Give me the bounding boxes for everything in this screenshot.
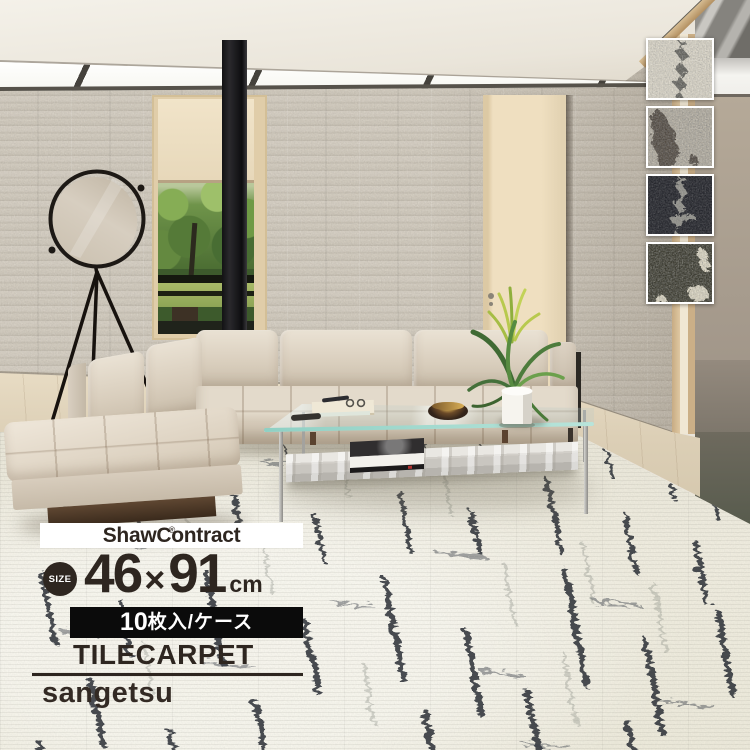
case-text: 枚入/ケース xyxy=(148,613,253,632)
plant-crown xyxy=(489,288,539,344)
size-unit: cm xyxy=(229,574,262,595)
size-badge: SIZE xyxy=(43,562,77,596)
potted-plant xyxy=(455,278,575,428)
book-spine-mark xyxy=(408,466,412,469)
swatch-colorway-3[interactable] xyxy=(646,174,714,236)
swatch-colorway-2[interactable] xyxy=(646,106,714,168)
swatch-colorway-1[interactable] xyxy=(646,38,714,100)
size-value: 46 × 91 cm xyxy=(84,549,263,599)
pot-rim xyxy=(502,387,533,396)
size-badge-label: SIZE xyxy=(49,574,72,585)
eyeglasses xyxy=(345,399,367,408)
case-quantity-bar: 10 枚入/ケース xyxy=(70,607,303,638)
table-lower-shelf xyxy=(286,442,578,483)
registered-mark: ® xyxy=(169,525,176,535)
product-hero-image: ShawContract® SIZE 46 × 91 cm 10 枚入/ケース … xyxy=(0,0,750,750)
size-width: 46 xyxy=(84,549,141,599)
book-on-shelf xyxy=(350,438,424,476)
size-height: 91 xyxy=(168,549,225,599)
pot-shading xyxy=(523,390,532,424)
multiply-sign: × xyxy=(144,564,165,596)
maker-logo: sangetsu xyxy=(42,679,173,708)
case-count: 10 xyxy=(120,610,148,635)
table-leg xyxy=(584,422,588,514)
swatch-colorway-4[interactable] xyxy=(646,242,714,304)
category-label: TILECARPET xyxy=(73,641,254,669)
table-leg xyxy=(279,428,283,522)
divider-rule xyxy=(32,673,303,676)
colorway-swatches xyxy=(646,38,716,304)
